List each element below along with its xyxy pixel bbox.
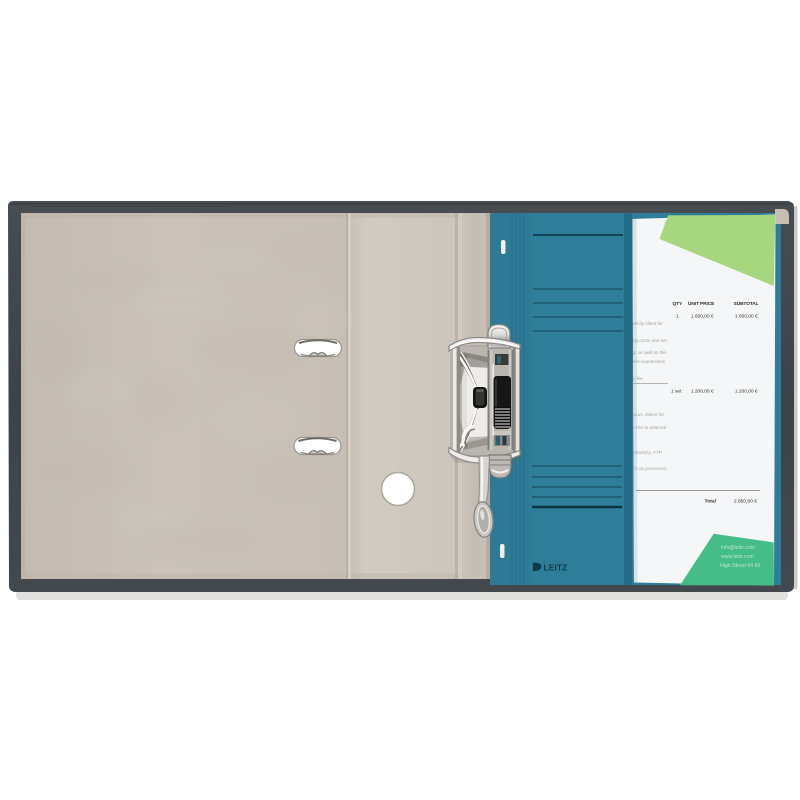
svg-text:LEITZ: LEITZ bbox=[544, 563, 568, 573]
svg-text:1.650,00 €: 1.650,00 € bbox=[691, 314, 714, 320]
svg-text:www.leitz.com: www.leitz.com bbox=[721, 554, 754, 560]
svg-text:1.650,00 €: 1.650,00 € bbox=[735, 314, 758, 320]
svg-text:tem expansions: tem expansions bbox=[633, 359, 666, 364]
svg-text:UNIT PRICE: UNIT PRICE bbox=[688, 301, 715, 307]
svg-text:1.200,00 €: 1.200,00 € bbox=[735, 389, 758, 395]
svg-text:SUBTOTAL: SUBTOTAL bbox=[734, 301, 759, 307]
svg-text:ng costs and are: ng costs and are bbox=[633, 338, 667, 343]
svg-text:1 set: 1 set bbox=[671, 389, 682, 395]
svg-text:1.200,00 €: 1.200,00 € bbox=[691, 389, 714, 395]
svg-text:g, as well as the: g, as well as the bbox=[633, 350, 666, 355]
svg-text:acus. Dtorst for: acus. Dtorst for bbox=[633, 412, 665, 417]
svg-text:y fee: y fee bbox=[632, 376, 643, 381]
svg-text:ed by client for: ed by client for bbox=[633, 321, 663, 326]
svg-text:ebsite(s), FTP: ebsite(s), FTP bbox=[633, 450, 663, 455]
svg-text:nsfer to external: nsfer to external bbox=[633, 425, 667, 430]
svg-text:Total: Total bbox=[705, 499, 717, 505]
svg-text:1: 1 bbox=[676, 314, 679, 320]
svg-text:High Street 64 66: High Street 64 66 bbox=[720, 563, 760, 569]
svg-text:info@leitz.com: info@leitz.com bbox=[721, 545, 755, 551]
svg-text:ch as processes,: ch as processes, bbox=[633, 466, 667, 471]
svg-text:2.850,00 €: 2.850,00 € bbox=[734, 499, 757, 505]
svg-text:QTY: QTY bbox=[673, 301, 683, 307]
